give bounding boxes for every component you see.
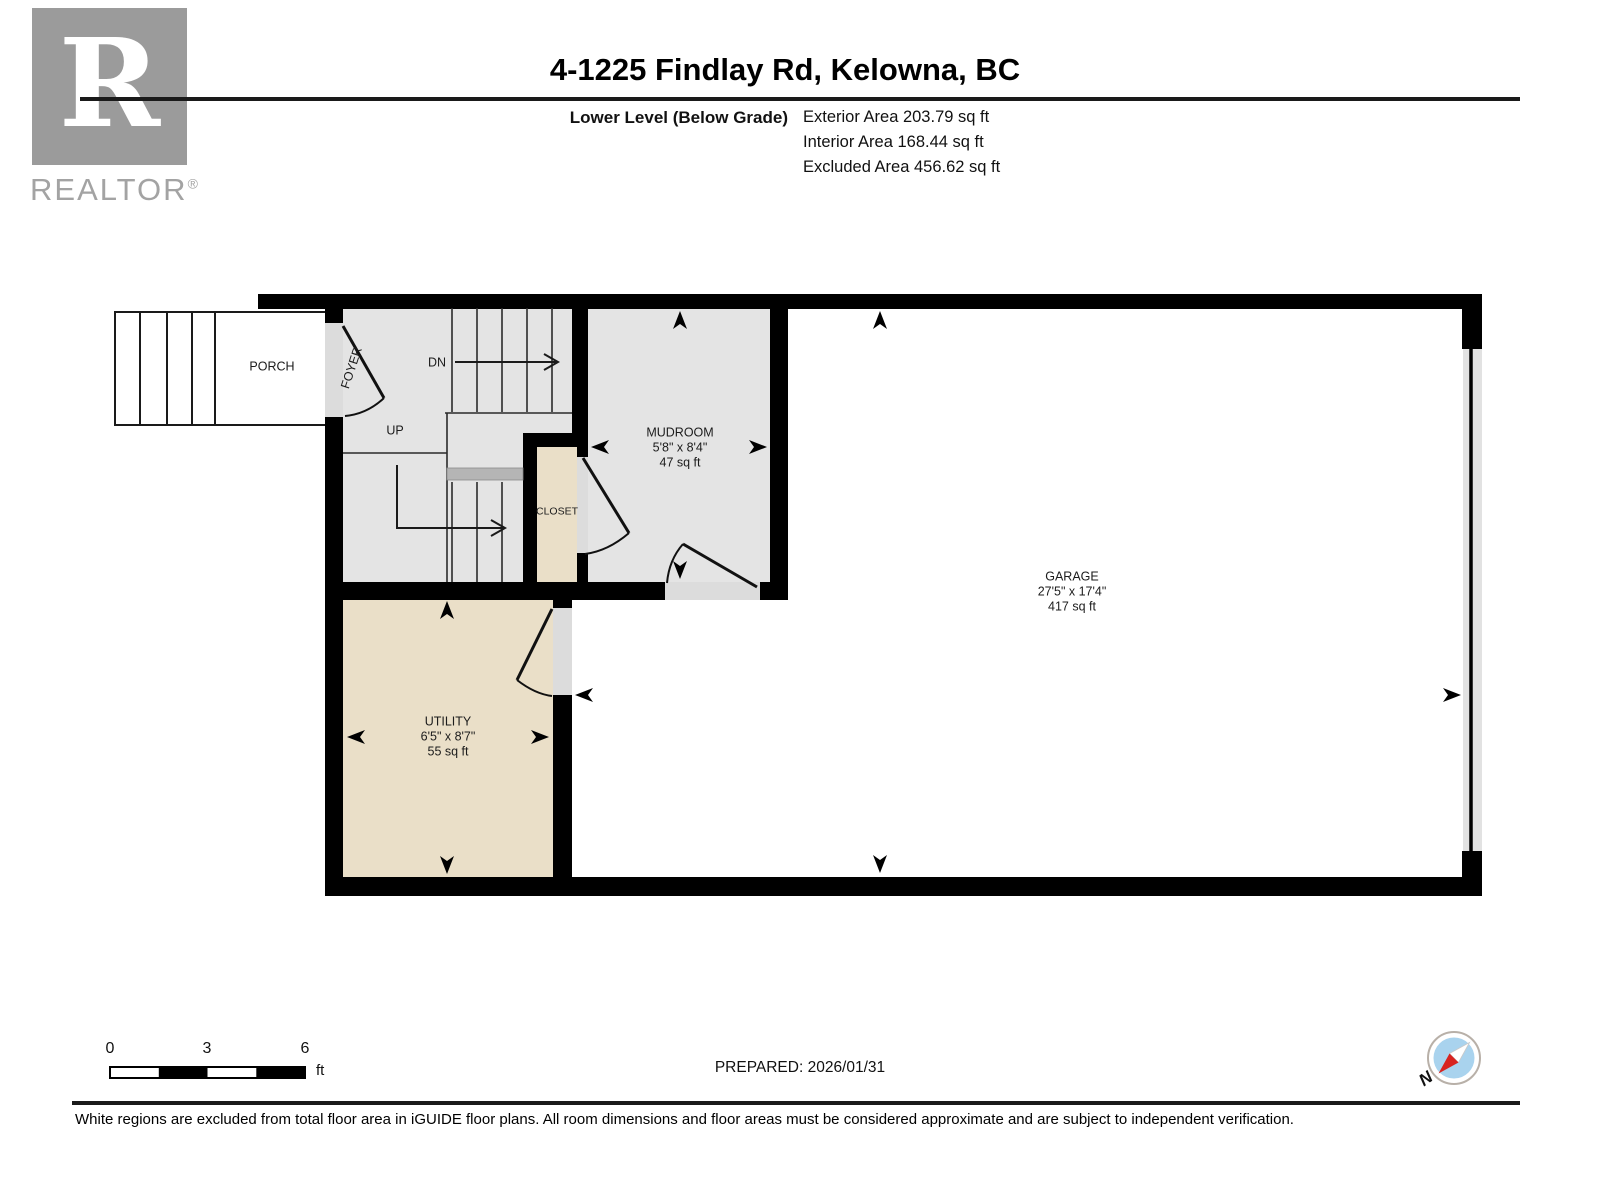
header-rule: [80, 97, 1520, 101]
entry-door-jamb: [325, 323, 343, 417]
garage-area: 417 sq ft: [1038, 600, 1107, 615]
prepared-date: PREPARED: 2026/01/31: [0, 1059, 1600, 1077]
up-text: UP: [386, 424, 403, 439]
utility-area: 55 sq ft: [421, 745, 476, 760]
utility-dims: 6'5" x 8'7": [421, 730, 476, 745]
utility-door-jamb: [553, 608, 572, 695]
mudroom-dims: 5'8" x 8'4": [646, 441, 713, 456]
wall-mid-horizontal-right: [760, 582, 788, 600]
porch-outline: [115, 312, 330, 425]
stair-dn-label: DN: [428, 356, 446, 371]
garage-dim-left-icon: [575, 688, 593, 702]
utility-name: UTILITY: [421, 715, 476, 730]
wall-stair-mudroom: [572, 308, 588, 433]
wall-top: [258, 294, 1482, 309]
mudroom-area: 47 sq ft: [646, 456, 713, 471]
garage-dim-down-icon: [873, 855, 887, 873]
garage-name: GARAGE: [1038, 570, 1107, 585]
wall-bottom: [325, 877, 1482, 896]
wall-closet-right-top: [577, 447, 588, 457]
scale-tick-0: 0: [106, 1040, 115, 1058]
utility-label: UTILITY 6'5" x 8'7" 55 sq ft: [421, 715, 476, 760]
wall-left-lower: [325, 417, 343, 877]
garage-label: GARAGE 27'5" x 17'4" 417 sq ft: [1038, 570, 1107, 615]
porch-name: PORCH: [249, 360, 294, 375]
floorplan-page: R REALTOR® 4-1225 Findlay Rd, Kelowna, B…: [0, 0, 1600, 1200]
closet-door-jamb: [577, 457, 588, 553]
closet-name: CLOSET: [536, 505, 578, 520]
garage-dims: 27'5" x 17'4": [1038, 585, 1107, 600]
scale-tick-3: 3: [203, 1040, 212, 1058]
porch-label: PORCH: [249, 360, 294, 375]
mudroom-name: MUDROOM: [646, 426, 713, 441]
porch-rect: [115, 312, 330, 425]
floorplan-drawing: [0, 0, 1600, 1200]
wall-mudroom-right: [770, 308, 788, 600]
disclaimer-text: White regions are excluded from total fl…: [75, 1111, 1535, 1128]
dn-text: DN: [428, 356, 446, 371]
wall-mid-horizontal: [325, 582, 665, 600]
mudroom-garage-threshold: [665, 582, 760, 600]
stair-break-line: [447, 468, 523, 480]
garage-dim-up-icon: [873, 311, 887, 329]
footer-rule: [72, 1101, 1520, 1105]
scale-tick-6: 6: [301, 1040, 310, 1058]
wall-left-upper: [325, 294, 343, 323]
stair-up-label: UP: [386, 424, 403, 439]
closet-label: CLOSET: [536, 505, 578, 520]
wall-closet-left: [523, 433, 537, 598]
wall-top-right: [1462, 309, 1482, 349]
garage-door: [1463, 349, 1482, 851]
mudroom-label: MUDROOM 5'8" x 8'4" 47 sq ft: [646, 426, 713, 471]
garage-dim-right-icon: [1443, 688, 1461, 702]
